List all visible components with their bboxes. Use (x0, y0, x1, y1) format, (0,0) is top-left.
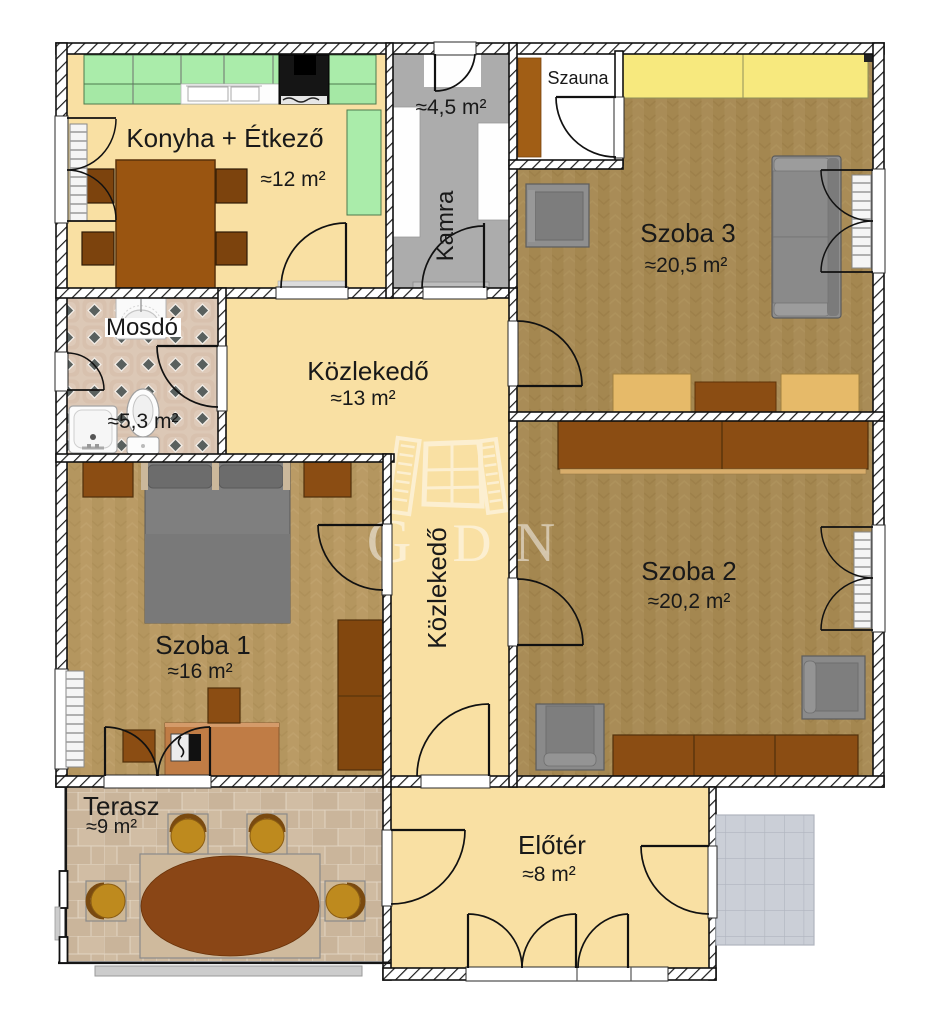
svg-text:≈9 m²: ≈9 m² (86, 816, 137, 838)
svg-text:Szauna: Szauna (547, 68, 609, 88)
svg-text:Közlekedő: Közlekedő (422, 527, 452, 648)
svg-text:≈5,3 m²: ≈5,3 m² (107, 410, 178, 433)
svg-text:D: D (453, 513, 492, 573)
svg-text:≈4,5 m²: ≈4,5 m² (415, 96, 486, 119)
svg-text:Kamra: Kamra (432, 190, 459, 261)
svg-text:≈16 m²: ≈16 m² (167, 660, 232, 683)
svg-text:Konyha + Étkező: Konyha + Étkező (126, 123, 323, 153)
svg-text:Szoba 3: Szoba 3 (640, 218, 735, 248)
svg-text:Szoba 2: Szoba 2 (641, 556, 736, 586)
svg-text:≈20,2 m²: ≈20,2 m² (648, 590, 731, 613)
svg-text:≈8 m²: ≈8 m² (522, 863, 576, 886)
svg-text:Szoba 1: Szoba 1 (155, 630, 250, 660)
svg-text:≈13 m²: ≈13 m² (330, 387, 395, 410)
svg-text:≈12 m²: ≈12 m² (260, 168, 325, 191)
svg-text:≈20,5 m²: ≈20,5 m² (645, 254, 728, 277)
svg-text:N: N (515, 512, 555, 574)
svg-text:Előtér: Előtér (518, 830, 586, 860)
svg-text:Közlekedő: Közlekedő (307, 356, 428, 386)
svg-text:Mosdó: Mosdó (106, 314, 178, 341)
